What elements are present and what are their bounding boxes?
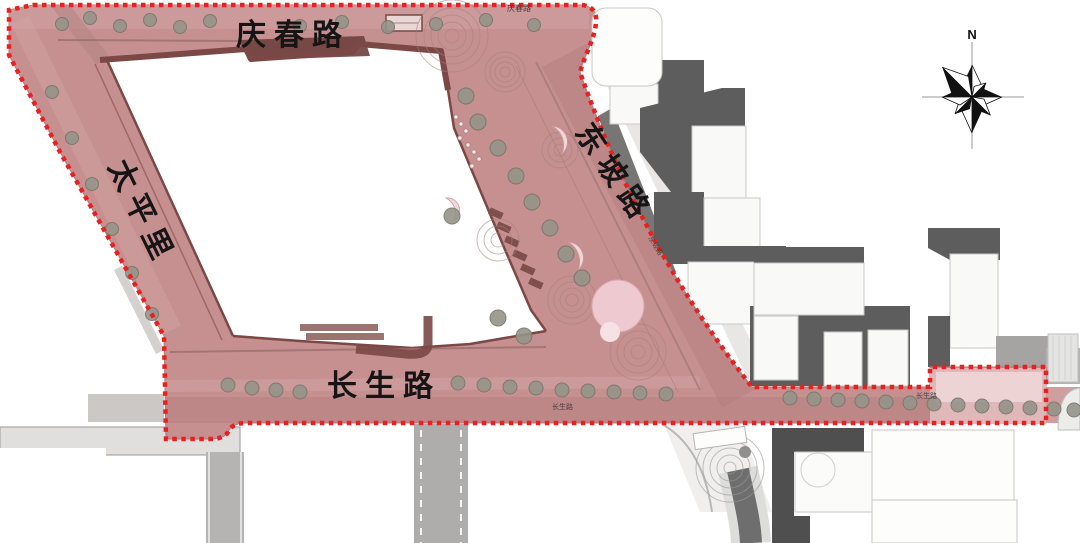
qingchun-median — [58, 40, 238, 41]
compass-star — [934, 59, 1002, 133]
bottom-step-2 — [306, 333, 384, 340]
building-7 — [824, 332, 862, 386]
footprint-3 — [872, 500, 1017, 543]
footprint-2 — [872, 430, 1014, 500]
master-plan-svg: 庆春路 太平里 东坡路 长生路 庆春路 东坡路 长生路 长生路 N — [0, 0, 1080, 543]
shadow-5 — [754, 247, 864, 263]
building-5 — [754, 263, 864, 315]
curved-road-dark — [738, 470, 751, 543]
tower-side-shadow — [928, 316, 950, 367]
southeast-context — [662, 424, 1017, 543]
dark-building-d — [784, 516, 810, 543]
building-6 — [754, 316, 798, 380]
compass-rose: N — [922, 27, 1024, 149]
bottom-step-1 — [300, 324, 378, 331]
east-plaza-highlight — [936, 372, 1042, 402]
site-plan-canvas: 庆春路 太平里 东坡路 长生路 庆春路 东坡路 长生路 长生路 N — [0, 0, 1080, 543]
label-qingchun-small: 庆春路 — [507, 3, 531, 13]
label-changsheng-small-east: 长生路 — [916, 391, 937, 400]
south-road-1 — [206, 452, 244, 543]
compass-north-label: N — [967, 27, 976, 42]
south-road-2 — [414, 424, 468, 543]
label-qingchun-road: 庆春路 — [236, 19, 350, 52]
pink-pavilion-small — [600, 322, 620, 342]
label-changsheng-road: 长生路 — [327, 370, 441, 403]
pink-pavilion-circle — [592, 280, 644, 332]
west-road-stub — [88, 394, 164, 422]
stipple-dot — [739, 446, 751, 458]
southwest-road-notch — [0, 448, 106, 456]
tower — [950, 254, 998, 348]
notch-building — [592, 8, 662, 86]
label-changsheng-small-west: 长生路 — [552, 402, 573, 411]
project-area — [9, 0, 1080, 439]
building-8 — [868, 330, 908, 386]
